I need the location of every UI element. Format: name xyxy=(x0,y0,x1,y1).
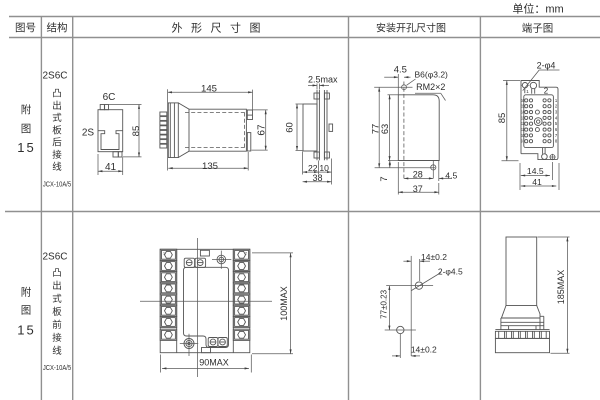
svg-text:图: 图 xyxy=(21,305,32,317)
svg-text:外形尺寸图: 外形尺寸图 xyxy=(172,21,270,35)
svg-text:凸: 凸 xyxy=(52,89,62,100)
svg-text:135: 135 xyxy=(202,161,218,172)
svg-text:出: 出 xyxy=(52,280,62,292)
svg-text:2-φ4.5: 2-φ4.5 xyxy=(438,267,463,277)
svg-text:3: 3 xyxy=(555,110,558,115)
svg-text:端子图: 端子图 xyxy=(522,22,554,35)
svg-text:前: 前 xyxy=(52,319,62,331)
svg-text:85: 85 xyxy=(497,113,508,124)
svg-text:出: 出 xyxy=(52,100,62,112)
svg-text:185MAX: 185MAX xyxy=(556,270,566,305)
svg-text:22: 22 xyxy=(308,163,318,173)
svg-text:2S6C: 2S6C xyxy=(42,252,67,263)
svg-text:15: 15 xyxy=(17,323,35,338)
svg-text:7: 7 xyxy=(555,133,558,138)
svg-text:14±0.2: 14±0.2 xyxy=(421,252,447,262)
svg-text:1: 1 xyxy=(526,89,529,94)
svg-text:12: 12 xyxy=(521,122,524,127)
svg-text:11: 11 xyxy=(521,127,524,132)
svg-text:1: 1 xyxy=(555,98,558,103)
svg-text:100MAX: 100MAX xyxy=(279,286,289,321)
svg-text:接: 接 xyxy=(52,149,62,161)
svg-text:14.5: 14.5 xyxy=(527,166,544,176)
svg-text:2S6C: 2S6C xyxy=(42,71,67,82)
svg-text:6C: 6C xyxy=(103,92,116,103)
svg-text:式: 式 xyxy=(52,293,62,305)
svg-text:JCX-10A/5: JCX-10A/5 xyxy=(43,181,71,189)
svg-text:67: 67 xyxy=(257,124,268,136)
svg-text:附: 附 xyxy=(21,286,32,299)
svg-text:28: 28 xyxy=(413,169,423,179)
svg-text:RM2×2: RM2×2 xyxy=(416,82,445,92)
svg-text:60: 60 xyxy=(285,122,296,133)
svg-text:14: 14 xyxy=(521,110,524,115)
svg-text:16: 16 xyxy=(521,98,524,103)
svg-text:6: 6 xyxy=(555,127,558,132)
svg-text:2S: 2S xyxy=(82,127,95,138)
svg-text:线: 线 xyxy=(52,161,62,173)
svg-text:4: 4 xyxy=(555,115,558,120)
svg-text:安装开孔尺寸图: 安装开孔尺寸图 xyxy=(376,22,446,35)
svg-text:图: 图 xyxy=(21,123,32,135)
svg-text:2: 2 xyxy=(544,87,549,96)
svg-text:9: 9 xyxy=(521,139,522,144)
svg-text:附: 附 xyxy=(21,103,32,116)
svg-text:77: 77 xyxy=(370,124,380,134)
svg-text:85: 85 xyxy=(131,126,142,137)
svg-text:4.5: 4.5 xyxy=(394,65,407,76)
svg-text:2: 2 xyxy=(555,104,558,109)
svg-text:5: 5 xyxy=(555,121,558,126)
svg-text:90MAX: 90MAX xyxy=(199,358,229,368)
svg-text:15: 15 xyxy=(521,104,524,109)
svg-text:后: 后 xyxy=(52,138,62,149)
svg-text:凸: 凸 xyxy=(52,268,62,279)
svg-text:式: 式 xyxy=(52,112,62,124)
svg-text:图号: 图号 xyxy=(15,22,36,34)
svg-text:8: 8 xyxy=(555,139,558,144)
svg-text:JCX-10A/5: JCX-10A/5 xyxy=(43,364,71,372)
svg-text:14±0.2: 14±0.2 xyxy=(411,345,437,355)
svg-text:板: 板 xyxy=(52,125,62,137)
svg-text:15: 15 xyxy=(17,140,35,155)
svg-text:63: 63 xyxy=(380,124,390,134)
svg-text:77±0.23: 77±0.23 xyxy=(379,289,388,318)
svg-text:单位：mm: 单位：mm xyxy=(512,2,563,16)
svg-text:145: 145 xyxy=(201,83,217,94)
svg-text:13: 13 xyxy=(521,116,524,121)
svg-text:41: 41 xyxy=(105,162,117,173)
svg-text:37: 37 xyxy=(413,184,423,194)
svg-text:7: 7 xyxy=(379,176,389,181)
svg-text:2-φ4: 2-φ4 xyxy=(537,60,556,70)
svg-text:41: 41 xyxy=(532,177,542,187)
svg-text:结构: 结构 xyxy=(47,21,68,34)
svg-text:接: 接 xyxy=(52,332,62,344)
svg-text:线: 线 xyxy=(52,345,62,357)
svg-text:板: 板 xyxy=(52,306,62,318)
svg-text:2.5max: 2.5max xyxy=(308,75,338,85)
svg-text:B6(φ3.2): B6(φ3.2) xyxy=(415,70,449,80)
svg-text:10: 10 xyxy=(521,133,524,138)
svg-text:38: 38 xyxy=(312,173,322,183)
svg-text:10: 10 xyxy=(319,163,329,173)
svg-text:4.5: 4.5 xyxy=(445,171,457,181)
